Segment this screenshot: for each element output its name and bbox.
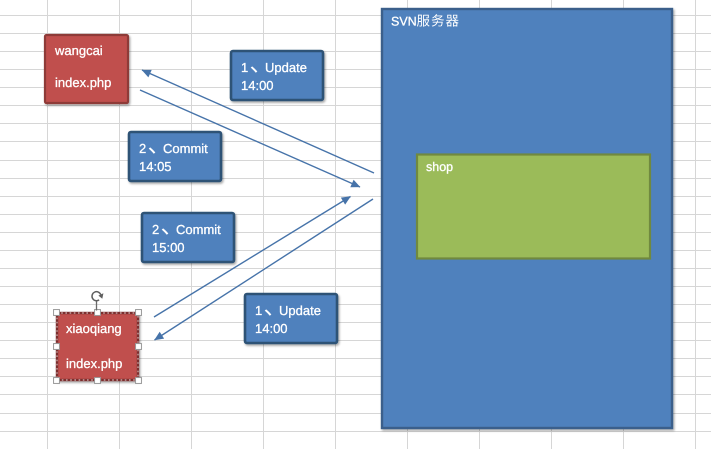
svg-text:shop: shop <box>426 160 453 174</box>
svg-text:2: 2 <box>139 141 146 156</box>
svg-text:xiaoqiang: xiaoqiang <box>66 321 122 336</box>
svg-text:1: 1 <box>255 303 262 318</box>
svg-text:14:00: 14:00 <box>241 78 274 93</box>
svg-text:Commit: Commit <box>163 141 208 156</box>
svg-text:SVN: SVN <box>391 15 417 29</box>
svg-text:index.php: index.php <box>55 75 111 90</box>
svg-text:wangcai: wangcai <box>54 43 103 58</box>
svg-text:Commit: Commit <box>176 222 221 237</box>
svg-text:2: 2 <box>152 222 159 237</box>
svg-text:14:00: 14:00 <box>255 321 288 336</box>
svg-text:15:00: 15:00 <box>152 240 185 255</box>
svg-text:Update: Update <box>279 303 321 318</box>
svg-text:14:05: 14:05 <box>139 159 172 174</box>
svg-text:1: 1 <box>241 60 248 75</box>
svg-text:Update: Update <box>265 60 307 75</box>
svg-text:index.php: index.php <box>66 356 122 371</box>
